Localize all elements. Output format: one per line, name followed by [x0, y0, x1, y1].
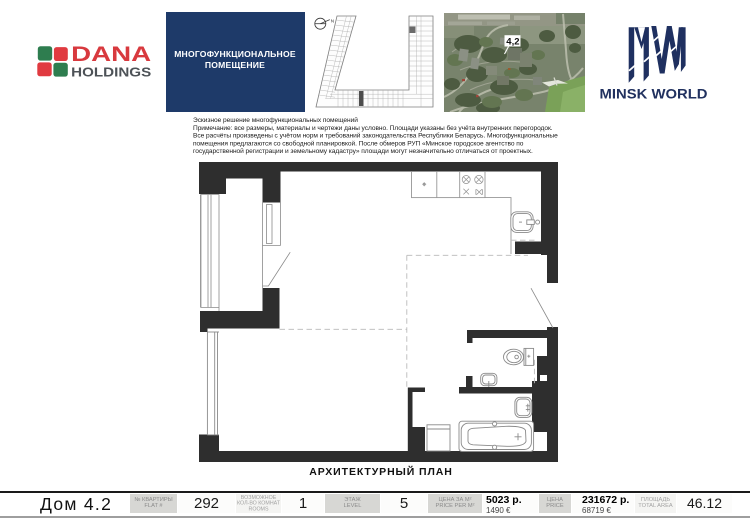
svg-text:HOLDINGS: HOLDINGS: [71, 66, 151, 80]
svg-text:MINSK WORLD: MINSK WORLD: [600, 87, 708, 102]
svg-text:DANA: DANA: [71, 43, 151, 66]
svg-text:N: N: [331, 19, 334, 24]
svg-text:4,2: 4,2: [506, 36, 519, 47]
